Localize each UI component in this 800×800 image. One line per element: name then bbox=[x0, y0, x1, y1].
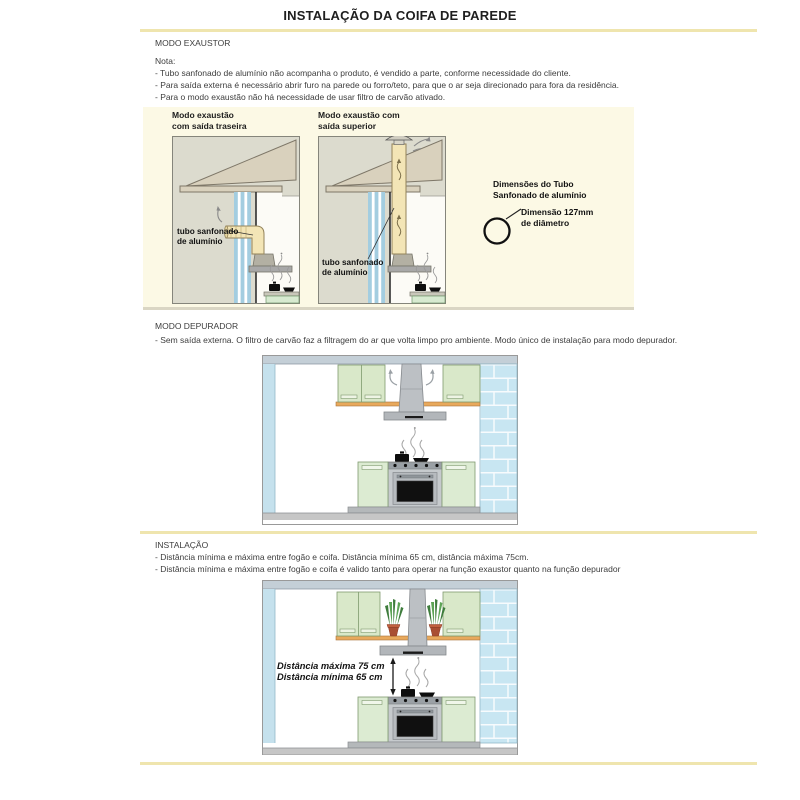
plinth bbox=[348, 742, 480, 748]
kitchen-diagram-depurador bbox=[262, 355, 518, 525]
duct-label: tubo sanfonado de alumínio bbox=[322, 258, 383, 278]
distance-max-label: Distância máxima 75 cm bbox=[277, 661, 385, 672]
left-wall bbox=[263, 364, 275, 513]
stove bbox=[388, 697, 442, 742]
pan-icon bbox=[419, 693, 435, 698]
left-wall bbox=[263, 589, 275, 743]
distance-min-label: Distância mínima 65 cm bbox=[277, 672, 385, 683]
house-diagram-rear-outlet bbox=[172, 136, 300, 304]
pot-icon bbox=[415, 284, 426, 291]
section-heading-depurador: MODO DEPURADOR bbox=[155, 321, 238, 331]
top-outlet-title: Modo exaustão com saída superior bbox=[318, 110, 400, 131]
floor bbox=[263, 513, 517, 520]
page-title: INSTALAÇÃO DA COIFA DE PAREDE bbox=[0, 8, 800, 23]
ceiling bbox=[263, 581, 517, 589]
dimensions-heading: Dimensões do Tubo Sanfonado de alumínio bbox=[493, 179, 587, 200]
distance-labels: Distância máxima 75 cm Distância mínima … bbox=[277, 661, 385, 684]
stove bbox=[388, 462, 442, 507]
manual-page: INSTALAÇÃO DA COIFA DE PAREDE MODO EXAUS… bbox=[0, 0, 800, 800]
house-diagram-top-outlet bbox=[318, 136, 446, 304]
wall-studs bbox=[234, 192, 251, 303]
rear-outlet-title: Modo exaustão com saída traseira bbox=[172, 110, 247, 131]
divider-rule bbox=[140, 29, 757, 32]
pot-icon bbox=[269, 284, 280, 291]
section-heading-exaustor: MODO EXAUSTOR bbox=[155, 38, 230, 48]
instalacao-notes: - Distância mínima e máxima entre fogão … bbox=[155, 551, 765, 575]
note-line: - Distância mínima e máxima entre fogão … bbox=[155, 563, 765, 575]
hood-stub bbox=[392, 254, 414, 266]
ceiling bbox=[263, 356, 517, 364]
pan-icon bbox=[429, 288, 441, 292]
note-label: Nota: bbox=[155, 55, 175, 67]
note-line: - Sem saída externa. O filtro de carvão … bbox=[155, 334, 765, 346]
divider-rule bbox=[140, 531, 757, 534]
pan-icon bbox=[283, 288, 295, 292]
brick-wall bbox=[480, 364, 517, 513]
pot-icon bbox=[395, 454, 409, 462]
hood-chimney bbox=[408, 589, 427, 646]
wall-studs bbox=[368, 192, 385, 303]
eave bbox=[180, 186, 282, 192]
duct-label: tubo sanfonado de alumínio bbox=[177, 227, 238, 247]
dimensions-value: Dimensão 127mm de diâmetro bbox=[521, 207, 593, 228]
divider-rule bbox=[140, 762, 757, 765]
pot-icon bbox=[401, 689, 415, 697]
note-line: - Distância mínima e máxima entre fogão … bbox=[155, 551, 765, 563]
duct-collar bbox=[394, 140, 404, 145]
brick-wall bbox=[480, 589, 517, 743]
section-heading-instalacao: INSTALAÇÃO bbox=[155, 540, 208, 550]
floor bbox=[263, 748, 517, 755]
note-line: - Para saída externa é necessário abrir … bbox=[155, 79, 755, 91]
hood-stub bbox=[253, 254, 275, 266]
exaustor-notes: - Tubo sanfonado de alumínio não acompan… bbox=[155, 67, 755, 103]
note-line: - Tubo sanfonado de alumínio não acompan… bbox=[155, 67, 755, 79]
note-line: - Para o modo exaustão não há necessidad… bbox=[155, 91, 755, 103]
plinth bbox=[348, 507, 480, 513]
hood-chimney bbox=[399, 364, 424, 412]
